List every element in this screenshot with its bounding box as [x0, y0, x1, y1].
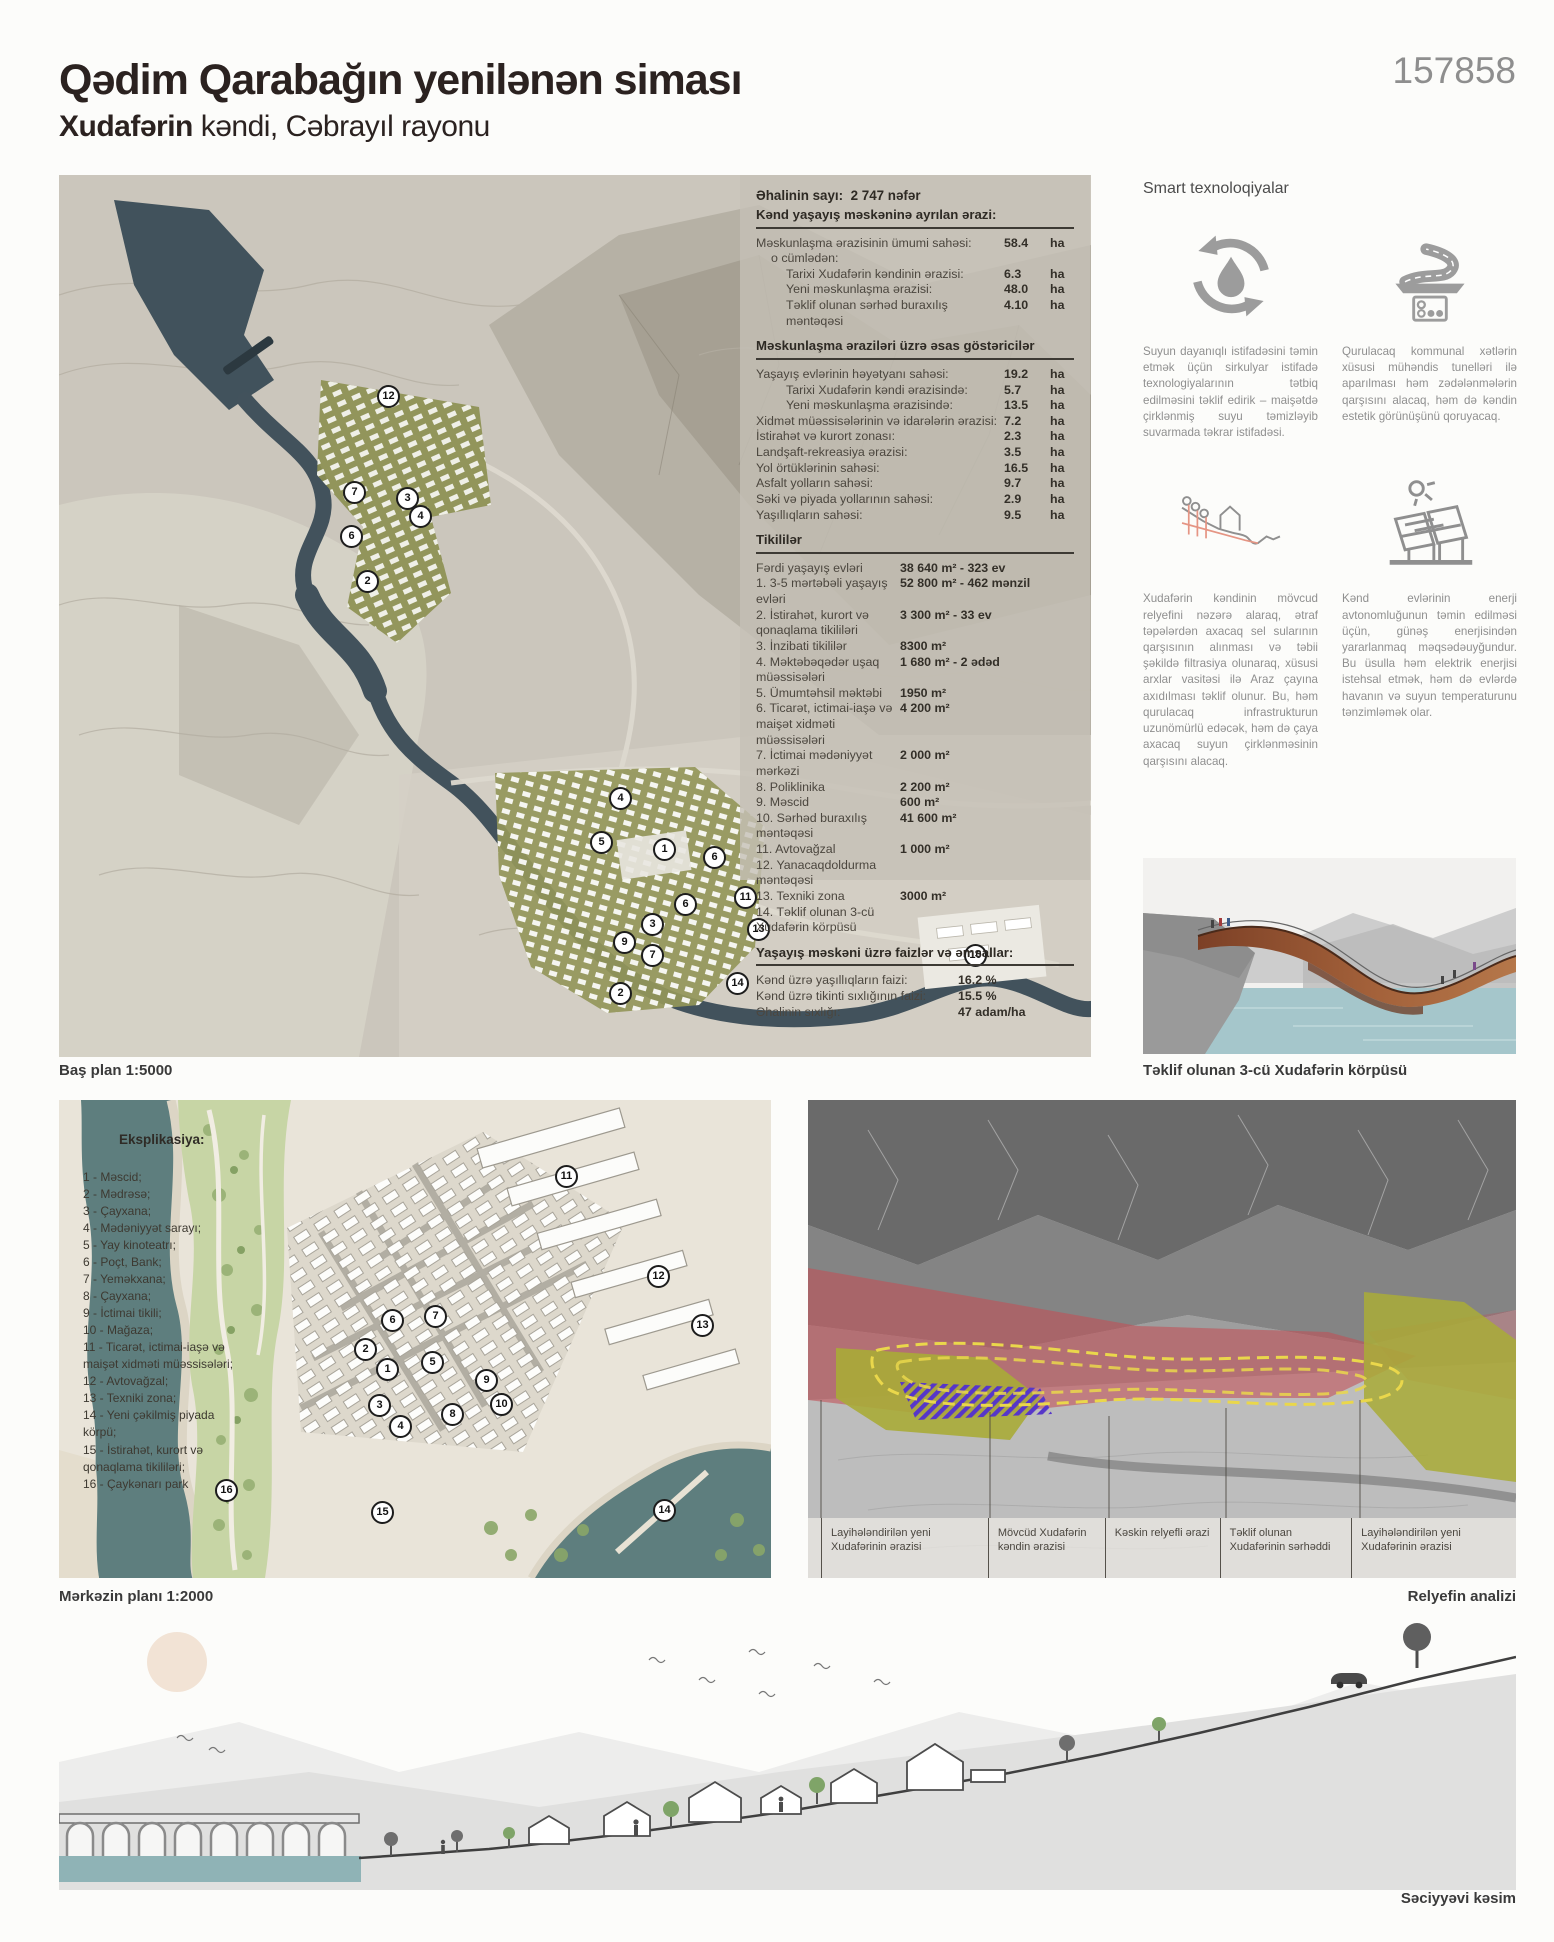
smart-grid: Suyun dayanıqlı istifadəsini təmin etmək…: [1143, 222, 1517, 770]
stats-row-value: 600 m²: [900, 795, 1050, 811]
stats-row-label: 6. Ticarət, ictimai-iaşə və maişət xidmə…: [756, 701, 900, 748]
stats-row-value: 4.10: [1004, 298, 1050, 314]
eksplikasiya-item: 6 - Poçt, Bank;: [83, 1254, 247, 1271]
stats-row-label: Tarixi Xudafərin kəndi ərazisində:: [756, 383, 1004, 399]
statistics-panel: Əhalinin sayı: 2 747 nəfər Kənd yaşayış …: [740, 175, 1090, 880]
stats-row-label: 8. Poliklinika: [756, 780, 900, 796]
stats-row-label: Tarixi Xudafərin kəndinin ərazisi:: [756, 267, 1004, 283]
stats-row-value: 16.5: [1004, 461, 1050, 477]
stats-row-value: 2 000 m²: [900, 748, 1050, 764]
stats-row: Asfalt yolların sahəsi:9.7ha: [756, 476, 1074, 492]
smart-item-text: Kənd evlərinin enerji avtonomluğunun təm…: [1342, 591, 1517, 721]
stats-row-value: 52 800 m² - 462 mənzil: [900, 576, 1050, 592]
stats-row: Yaşıllıqların sahəsi:9.5ha: [756, 508, 1074, 524]
stats-row-unit: ha: [1050, 282, 1074, 298]
stats-row-value: 1 680 m² - 2 ədəd: [900, 655, 1050, 671]
eksplikasiya-item: 5 - Yay kinoteatrı;: [83, 1237, 247, 1254]
stats-row: Məskunlaşma ərazisinin ümumi sahəsi:58.4…: [756, 236, 1074, 252]
subtitle-village: Xudafərin: [59, 110, 193, 143]
stats-row: 13. Texniki zona3000 m²: [756, 889, 1074, 905]
stats-row-label: 13. Texniki zona: [756, 889, 900, 905]
stats-row: Əhalinin sıxlığı:47 adam/ha: [756, 1005, 1074, 1021]
stats-row: Səki və piyada yollarının sahəsi:2.9ha: [756, 492, 1074, 508]
relief-legend-label: Təklif olunan Xudafərinin sərhəddi: [1220, 1518, 1352, 1578]
caption-relief: Relyefin analizi: [1143, 1588, 1516, 1605]
board-number: 157858: [1380, 50, 1516, 92]
stats-row: İstirahət və kurort zonası:2.3ha: [756, 429, 1074, 445]
stats-row: Xidmət müəssisələrinin və idarələrin əra…: [756, 414, 1074, 430]
plan-marker-5: 5: [421, 1351, 444, 1374]
plan-marker-6: 6: [674, 893, 697, 916]
stats-row: Tarixi Xudafərin kəndi ərazisində:5.7ha: [756, 383, 1074, 399]
stats-row-unit: ha: [1050, 398, 1074, 414]
stats-row-unit: ha: [1050, 267, 1074, 283]
stats-row: 9. Məscid600 m²: [756, 795, 1074, 811]
relief-legend-bar: Layihələndirilən yeni Xudafərinin ərazis…: [808, 1518, 1516, 1578]
stats-row-value: 6.3: [1004, 267, 1050, 283]
stats-section: Yaşayış məskəni üzrə faizlər və əmsallar…: [756, 945, 1074, 1021]
smart-item-drainage: Xudafərin kəndinin mövcud relyefini nəzə…: [1143, 469, 1318, 769]
population-line: Əhalinin sayı: 2 747 nəfər: [756, 188, 1074, 205]
eksplikasiya-item: 2 - Mədrəsə;: [83, 1186, 247, 1203]
population-label: Əhalinin sayı:: [756, 188, 843, 203]
eksplikasiya-item: 13 - Texniki zona;: [83, 1390, 247, 1407]
stats-row-value: 5.7: [1004, 383, 1050, 399]
stats-row-label: Kənd üzrə yaşıllıqların faizi:: [756, 973, 958, 989]
stats-row-label: Yeni məskunlaşma ərazisi:: [756, 282, 1004, 298]
plan-marker-3: 3: [641, 913, 664, 936]
stats-row-value: 13.5: [1004, 398, 1050, 414]
stats-row-label: Kənd üzrə tikinti sıxlığının faizi:: [756, 989, 958, 1005]
section-drawing-figure: [59, 1622, 1516, 1890]
central-plan-figure: Eksplikasiya: 1 - Məscid;2 - Mədrəsə;3 -…: [59, 1100, 771, 1578]
stats-row-label: 9. Məscid: [756, 795, 900, 811]
plan-marker-1: 1: [376, 1358, 399, 1381]
relief-legend-label: Kəskin relyefli ərazi: [1105, 1518, 1220, 1578]
stats-row-label: 10. Sərhəd buraxılış məntəqəsi: [756, 811, 900, 842]
stats-row-unit: ha: [1050, 236, 1074, 252]
plan-marker-10: 10: [490, 1393, 513, 1416]
stats-section-title: Yaşayış məskəni üzrə faizlər və əmsallar…: [756, 945, 1074, 967]
stats-row-label: Asfalt yolların sahəsi:: [756, 476, 1004, 492]
stats-row-label: 5. Ümumtəhsil məktəbi: [756, 686, 900, 702]
stats-row: 12. Yanacaqdoldurma məntəqəsi: [756, 858, 1074, 889]
stats-row-unit: ha: [1050, 476, 1074, 492]
stats-row-label: o cümlədən:: [756, 251, 1004, 267]
stats-row-value: 19.2: [1004, 367, 1050, 383]
stats-row: Kənd üzrə yaşıllıqların faizi:16.2 %: [756, 973, 1074, 989]
stats-row-value: 8300 m²: [900, 639, 1050, 655]
caption-central-plan: Mərkəzin planı 1:2000: [59, 1588, 213, 1605]
plan-marker-11: 11: [734, 886, 757, 909]
stats-row: 2. İstirahət, kurort və qonaqlama tikili…: [756, 608, 1074, 639]
caption-master-plan: Baş plan 1:5000: [59, 1062, 172, 1079]
statistics-sections: Kənd yaşayış məskəninə ayrılan ərazi:Məs…: [756, 207, 1074, 1020]
stats-row: Yaşayış evlərinin həyətyanı sahəsi:19.2h…: [756, 367, 1074, 383]
stats-row-value: 4 200 m²: [900, 701, 1050, 717]
population-value: 2 747 nəfər: [851, 188, 921, 203]
plan-marker-14: 14: [653, 1499, 676, 1522]
bridge-render-figure: [1143, 858, 1516, 1054]
plan-marker-9: 9: [613, 931, 636, 954]
plan-marker-9: 9: [475, 1369, 498, 1392]
eksplikasiya-item: 12 - Avtovağzal;: [83, 1373, 247, 1390]
stats-row-label: Yaşayış evlərinin həyətyanı sahəsi:: [756, 367, 1004, 383]
stats-row: 6. Ticarət, ictimai-iaşə və maişət xidmə…: [756, 701, 1074, 748]
stats-row: 7. İctimai mədəniyyət mərkəzi2 000 m²: [756, 748, 1074, 779]
stats-section-title: Tikililər: [756, 532, 1074, 554]
plan-marker-12: 12: [377, 385, 400, 408]
stats-row-label: 1. 3-5 mərtəbəli yaşayış evləri: [756, 576, 900, 607]
stats-row: Kənd üzrə tikinti sıxlığının faizi:15.5 …: [756, 989, 1074, 1005]
stats-row-unit: ha: [1050, 445, 1074, 461]
stats-row-unit: ha: [1050, 298, 1074, 314]
plan-marker-4: 4: [609, 787, 632, 810]
smart-item-text: Xudafərin kəndinin mövcud relyefini nəzə…: [1143, 591, 1318, 769]
stats-row-label: 3. İnzibati tikililər: [756, 639, 900, 655]
relief-analysis-map: [808, 1100, 1516, 1578]
stats-row-label: Əhalinin sıxlığı:: [756, 1005, 958, 1021]
plan-marker-12: 12: [647, 1265, 670, 1288]
stats-row-label: Yeni məskunlaşma ərazisində:: [756, 398, 1004, 414]
stats-section-title: Məskunlaşma əraziləri üzrə əsas göstəric…: [756, 338, 1074, 360]
stats-row-value: 1950 m²: [900, 686, 1050, 702]
stats-row: Yeni məskunlaşma ərazisi:48.0ha: [756, 282, 1074, 298]
stats-row-unit: ha: [1050, 367, 1074, 383]
stats-row-label: 11. Avtovağzal: [756, 842, 900, 858]
eksplikasiya-title: Eksplikasiya:: [119, 1132, 247, 1147]
stats-row-value: 9.5: [1004, 508, 1050, 524]
plan-marker-2: 2: [354, 1338, 377, 1361]
stats-row-value: 2 200 m²: [900, 780, 1050, 796]
plan-marker-14: 14: [726, 972, 749, 995]
plan-marker-6: 6: [703, 846, 726, 869]
eksplikasiya-item: 3 - Çayxana;: [83, 1203, 247, 1220]
stats-row: Təklif olunan sərhəd buraxılış məntəqəsi…: [756, 298, 1074, 329]
stats-row: 5. Ümumtəhsil məktəbi1950 m²: [756, 686, 1074, 702]
eksplikasiya-item: 15 - İstirahət, kurort və qonaqlama tiki…: [83, 1442, 247, 1476]
stats-row-value: 3 300 m² - 33 ev: [900, 608, 1050, 624]
stats-row-unit: ha: [1050, 492, 1074, 508]
stats-row: Yeni məskunlaşma ərazisində:13.5ha: [756, 398, 1074, 414]
stats-row: 14. Təklif olunan 3-cü Xudafərin körpüsü: [756, 905, 1074, 936]
stats-row-value: 58.4: [1004, 236, 1050, 252]
plan-marker-8: 8: [441, 1403, 464, 1426]
stats-row-label: Yaşıllıqların sahəsi:: [756, 508, 1004, 524]
page-title: Qədim Qarabağın yenilənən siması: [59, 56, 742, 105]
eksplikasiya-item: 4 - Mədəniyyət sarayı;: [83, 1220, 247, 1237]
stats-row-label: 4. Məktəbəqədər uşaq müəssisələri: [756, 655, 900, 686]
stats-row-unit: ha: [1050, 383, 1074, 399]
stats-row: Landşaft-rekreasiya ərazisi:3.5ha: [756, 445, 1074, 461]
smart-item-text: Suyun dayanıqlı istifadəsini təmin etmək…: [1143, 344, 1318, 441]
stats-row-value: 3.5: [1004, 445, 1050, 461]
stats-row-value: 41 600 m²: [900, 811, 1050, 827]
plan-marker-13: 13: [691, 1314, 714, 1337]
smart-technologies-panel: Smart texnoloqiyalar Suyun dayanıqlı ist…: [1143, 180, 1517, 770]
stats-row: 3. İnzibati tikililər8300 m²: [756, 639, 1074, 655]
stats-row-label: İstirahət və kurort zonası:: [756, 429, 1004, 445]
stats-section: TikililərFərdi yaşayış evləri38 640 m² -…: [756, 532, 1074, 936]
smart-item-water: Suyun dayanıqlı istifadəsini təmin etmək…: [1143, 222, 1318, 441]
stats-row: o cümlədən:: [756, 251, 1074, 267]
stats-row-value: 38 640 m² - 323 ev: [900, 561, 1050, 577]
relief-legend-label: Layihələndirilən yeni Xudafərinin ərazis…: [821, 1518, 988, 1578]
plan-marker-11: 11: [555, 1165, 578, 1188]
stats-row: 8. Poliklinika2 200 m²: [756, 780, 1074, 796]
plan-marker-15: 15: [371, 1501, 394, 1524]
stats-row: Tarixi Xudafərin kəndinin ərazisi:6.3ha: [756, 267, 1074, 283]
plan-marker-7: 7: [343, 481, 366, 504]
stats-row-label: Xidmət müəssisələrinin və idarələrin əra…: [756, 414, 1004, 430]
relief-legend-label: Layihələndirilən yeni Xudafərinin ərazis…: [1351, 1518, 1516, 1578]
plan-marker-6: 6: [340, 525, 363, 548]
plan-marker-1: 1: [653, 838, 676, 861]
page-subtitle: Xudafərin kəndi, Cəbrayıl rayonu: [59, 110, 490, 144]
stats-row-value: 7.2: [1004, 414, 1050, 430]
smart-item-solar: Kənd evlərinin enerji avtonomluğunun təm…: [1342, 469, 1517, 769]
stats-row-unit: ha: [1050, 461, 1074, 477]
stats-row: Fərdi yaşayış evləri38 640 m² - 323 ev: [756, 561, 1074, 577]
stats-row-label: Təklif olunan sərhəd buraxılış məntəqəsi: [756, 298, 1004, 329]
terrain-drainage-icon: [1143, 469, 1318, 577]
plan-marker-4: 4: [409, 505, 432, 528]
plan-marker-3: 3: [368, 1394, 391, 1417]
subtitle-region: kəndi, Cəbrayıl rayonu: [193, 110, 490, 143]
eksplikasiya-legend: Eksplikasiya: 1 - Məscid;2 - Mədrəsə;3 -…: [83, 1132, 247, 1493]
solar-panel-icon: [1342, 469, 1517, 577]
plan-marker-7: 7: [424, 1305, 447, 1328]
stats-row-value: 1 000 m²: [900, 842, 1050, 858]
stats-row-value: 3000 m²: [900, 889, 1050, 905]
eksplikasiya-item: 11 - Ticarət, ictimai-iaşə və maişət xid…: [83, 1339, 247, 1373]
relief-analysis-figure: Layihələndirilən yeni Xudafərinin ərazis…: [808, 1100, 1516, 1578]
caption-section: Səciyyəvi kəsim: [1143, 1890, 1516, 1907]
stats-row: 1. 3-5 mərtəbəli yaşayış evləri52 800 m²…: [756, 576, 1074, 607]
smart-title: Smart texnoloqiyalar: [1143, 180, 1517, 198]
stats-row-label: 12. Yanacaqdoldurma məntəqəsi: [756, 858, 900, 889]
plan-marker-2: 2: [609, 982, 632, 1005]
eksplikasiya-item: 8 - Çayxana;: [83, 1288, 247, 1305]
stats-row-value: 15.5 %: [958, 989, 1050, 1005]
eksplikasiya-item: 1 - Məscid;: [83, 1169, 247, 1186]
plan-marker-16: 16: [215, 1479, 238, 1502]
stats-row-label: 2. İstirahət, kurort və qonaqlama tikili…: [756, 608, 900, 639]
river-water: [59, 1856, 361, 1882]
eksplikasiya-item: 10 - Mağaza;: [83, 1322, 247, 1339]
eksplikasiya-item: 9 - İctimai tikili;: [83, 1305, 247, 1322]
eksplikasiya-items: 1 - Məscid;2 - Mədrəsə;3 - Çayxana;4 - M…: [83, 1169, 247, 1493]
stats-row-value: 2.3: [1004, 429, 1050, 445]
plan-marker-5: 5: [590, 831, 613, 854]
stats-row: 4. Məktəbəqədər uşaq müəssisələri1 680 m…: [756, 655, 1074, 686]
stats-section: Kənd yaşayış məskəninə ayrılan ərazi:Məs…: [756, 207, 1074, 329]
eksplikasiya-item: 14 - Yeni çəkilmiş piyada körpü;: [83, 1407, 247, 1441]
plan-marker-6: 6: [381, 1309, 404, 1332]
road-utility-tunnel-icon: [1342, 222, 1517, 330]
water-recycle-icon: [1143, 222, 1318, 330]
stats-row-unit: ha: [1050, 508, 1074, 524]
stats-row-value: 16.2 %: [958, 973, 1050, 989]
stats-row: 11. Avtovağzal1 000 m²: [756, 842, 1074, 858]
stats-row-unit: ha: [1050, 414, 1074, 430]
stats-row-label: Fərdi yaşayış evləri: [756, 561, 900, 577]
purple-hatched-zone: [900, 1382, 1052, 1420]
plan-marker-4: 4: [389, 1415, 412, 1438]
stats-row-label: Səki və piyada yollarının sahəsi:: [756, 492, 1004, 508]
smart-item-text: Qurulacaq kommunal xətlərin xüsusi mühən…: [1342, 344, 1517, 425]
relief-legend-label: Mövcüd Xudafərin kəndin ərazisi: [988, 1518, 1105, 1578]
stats-row-label: Landşaft-rekreasiya ərazisi:: [756, 445, 1004, 461]
stats-section: Məskunlaşma əraziləri üzrə əsas göstəric…: [756, 338, 1074, 523]
bridge-render: [1143, 858, 1516, 1054]
stats-row: Yol örtüklərinin sahəsi:16.5ha: [756, 461, 1074, 477]
stats-row-label: 14. Təklif olunan 3-cü Xudafərin körpüsü: [756, 905, 900, 936]
plan-marker-7: 7: [641, 944, 664, 967]
stats-row-label: Yol örtüklərinin sahəsi:: [756, 461, 1004, 477]
stats-row-value: 47 adam/ha: [958, 1005, 1050, 1021]
competition-board: Qədim Qarabağın yenilənən siması Xudafər…: [0, 0, 1554, 1942]
stats-section-title: Kənd yaşayış məskəninə ayrılan ərazi:: [756, 207, 1074, 229]
plan-marker-2: 2: [356, 570, 379, 593]
stats-row-value: 48.0: [1004, 282, 1050, 298]
stats-row: 10. Sərhəd buraxılış məntəqəsi41 600 m²: [756, 811, 1074, 842]
stats-row-label: Məskunlaşma ərazisinin ümumi sahəsi:: [756, 236, 1004, 252]
stats-row-label: 7. İctimai mədəniyyət mərkəzi: [756, 748, 900, 779]
stats-row-value: 9.7: [1004, 476, 1050, 492]
eksplikasiya-item: 7 - Yeməkxana;: [83, 1271, 247, 1288]
section-drawing: [59, 1622, 1516, 1890]
sun: [147, 1632, 207, 1692]
smart-item-tunnel: Qurulacaq kommunal xətlərin xüsusi mühən…: [1342, 222, 1517, 441]
stats-row-value: 2.9: [1004, 492, 1050, 508]
caption-bridge: Təklif olunan 3-cü Xudafərin körpüsü: [1143, 1062, 1407, 1079]
stats-row-unit: ha: [1050, 429, 1074, 445]
